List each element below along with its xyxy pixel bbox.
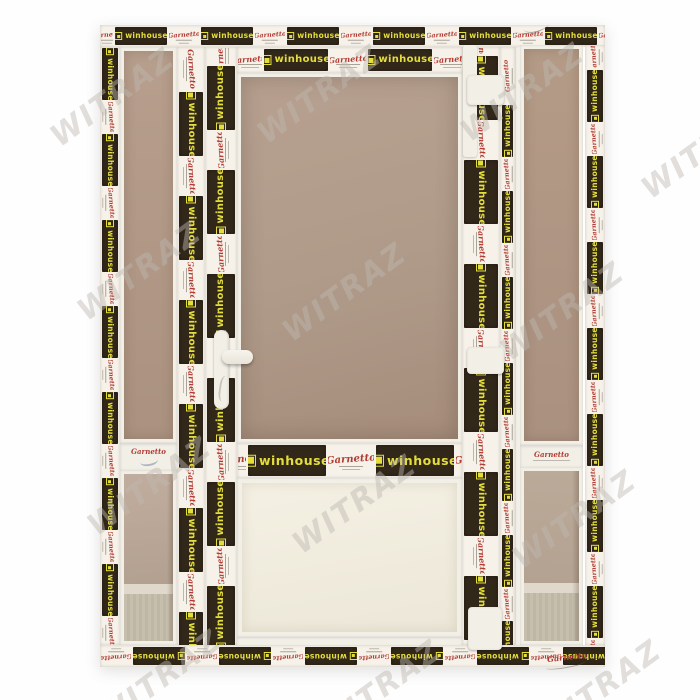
winhouse-wordmark: winhouse [469, 32, 511, 40]
garnetto-wordmark: Garnetto [238, 54, 262, 65]
film-print-line [186, 580, 187, 604]
garnetto-wordmark: Garnetto [590, 46, 599, 68]
winhouse-logo-icon [504, 580, 512, 587]
winhouse-wordmark: winhouse [106, 58, 114, 100]
marker-scribble [139, 454, 158, 467]
film-segment-winhouse: winhouse [502, 535, 513, 587]
film-segment-garnetto: Garnetto [102, 618, 118, 645]
winhouse-logo-icon [264, 55, 271, 65]
film-segment-garnetto: Garnetto [464, 538, 498, 574]
film-segment-winhouse: winhouse [219, 647, 271, 665]
film-segment-winhouse: winhouse [133, 647, 185, 665]
garnetto-wordmark: Garnetto [502, 503, 511, 533]
tinted-glass [124, 51, 173, 439]
film-segment-garnetto: Garnetto [207, 132, 235, 168]
film-print-line [598, 303, 599, 319]
garnetto-wordmark: Garnetto [187, 653, 217, 662]
film-print-line [106, 367, 107, 383]
winhouse-wordmark: winhouse [186, 206, 196, 260]
winhouse-wordmark: winhouse [106, 488, 114, 530]
film-segment-winhouse: winhouse [587, 414, 603, 466]
room-carpet [124, 594, 173, 641]
winhouse-logo-icon [476, 576, 486, 583]
film-segment-garnetto: Garnetto [359, 647, 389, 665]
winhouse-wordmark: winhouse [504, 191, 512, 233]
winhouse-logo-icon [591, 115, 599, 122]
winhouse-logo-icon [216, 539, 226, 546]
film-print-line [106, 195, 107, 211]
infill-panel [242, 483, 457, 632]
film-segment-garnetto: Garnetto [102, 102, 118, 132]
film-segment-winhouse: winhouse [587, 500, 603, 552]
winhouse-wordmark: winhouse [476, 274, 486, 328]
film-segment-winhouse: winhouse [587, 156, 603, 208]
winhouse-wordmark: winhouse [591, 328, 599, 370]
winhouse-logo-icon [106, 220, 114, 227]
winhouse-logo-icon [106, 48, 114, 55]
garnetto-wordmark: Garnetto [590, 210, 599, 240]
garnetto-wordmark: Garnetto [101, 31, 113, 40]
film-segment-winhouse: winhouse [207, 170, 235, 234]
garnetto-wordmark: Garnetto [590, 296, 599, 326]
film-print-line [598, 561, 599, 577]
film-print-line [476, 232, 477, 256]
winhouse-logo-icon [504, 322, 512, 329]
film-segment-garnetto: Garnetto [599, 27, 605, 45]
winhouse-logo-icon [504, 150, 512, 157]
film-segment-garnetto: Garnetto [587, 554, 603, 584]
film-print-line [511, 596, 512, 612]
winhouse-logo-icon [591, 545, 599, 552]
film-print-line [225, 554, 226, 578]
film-print-line [106, 281, 107, 297]
winhouse-logo-icon [476, 160, 486, 167]
film-print-line [225, 242, 226, 266]
winhouse-wordmark: winhouse [305, 652, 347, 660]
film-print-line [336, 64, 360, 65]
handwritten-note: Garnetto [547, 651, 587, 663]
winhouse-wordmark: winhouse [504, 363, 512, 405]
film-segment-garnetto: Garnetto [207, 548, 235, 584]
winhouse-wordmark: winhouse [186, 518, 196, 572]
garnetto-wordmark: Garnetto [238, 453, 246, 466]
film-print-line [511, 510, 512, 526]
winhouse-wordmark: winhouse [504, 277, 512, 319]
winhouse-logo-icon [186, 196, 196, 203]
winhouse-wordmark: winhouse [591, 156, 599, 198]
film-segment-winhouse: winhouse [464, 368, 498, 432]
garnetto-wordmark: Garnetto [502, 589, 511, 619]
garnetto-wordmark: Garnetto [215, 48, 226, 64]
garnetto-wordmark: Garnetto [590, 468, 599, 498]
winhouse-logo-icon [504, 408, 512, 415]
winhouse-logo-icon [216, 435, 226, 442]
film-segment-winhouse: winhouse [502, 621, 513, 645]
winhouse-wordmark: winhouse [106, 574, 114, 616]
film-segment-winhouse: winhouse [102, 564, 118, 616]
winhouse-logo-icon [106, 478, 114, 485]
winhouse-logo-icon [591, 287, 599, 294]
film-segment-garnetto: Garnetto [587, 210, 603, 240]
winhouse-wordmark: winhouse [297, 32, 339, 40]
door-hinge-middle [467, 347, 504, 374]
protective-film-right-frame: GarnettowinhouseGarnettowinhouseGarnetto… [585, 45, 605, 645]
winhouse-wordmark: winhouse [106, 230, 114, 272]
sidelight-right-lower-glass [520, 467, 583, 645]
film-segment-garnetto: Garnetto [102, 274, 118, 304]
film-segment-winhouse: winhouse [459, 27, 511, 45]
door-hinge-bottom [468, 607, 502, 650]
winhouse-wordmark: winhouse [216, 170, 226, 224]
film-print-line [452, 652, 468, 653]
film-segment-garnetto: Garnetto [238, 445, 246, 476]
film-print-line [339, 466, 363, 467]
film-print-line [194, 652, 210, 653]
winhouse-logo-icon [106, 306, 114, 313]
garnetto-wordmark: Garnetto [215, 132, 226, 168]
film-segment-winhouse: winhouse [207, 586, 235, 645]
protective-film-left-mullion: GarnettowinhouseGarnettowinhouseGarnetto… [177, 47, 205, 645]
film-segment-winhouse: winhouse [248, 445, 326, 476]
winhouse-logo-icon [216, 643, 226, 645]
winhouse-wordmark: winhouse [133, 652, 175, 660]
film-segment-winhouse: winhouse [102, 220, 118, 272]
film-segment-garnetto: Garnetto [101, 27, 113, 45]
garnetto-wordmark: Garnetto [187, 49, 198, 89]
film-print-line [238, 466, 246, 467]
garnetto-wordmark: Garnetto [328, 453, 374, 466]
winhouse-logo-icon [201, 32, 208, 40]
film-segment-winhouse: winhouse [373, 27, 425, 45]
film-segment-winhouse: winhouse [464, 264, 498, 328]
garnetto-wordmark: Garnetto [477, 122, 488, 158]
film-segment-winhouse: winhouse [264, 49, 328, 71]
film-segment-garnetto: Garnetto [427, 27, 457, 45]
winhouse-logo-icon [545, 32, 552, 40]
garnetto-wordmark: Garnetto [215, 444, 226, 480]
room-baseboard [524, 583, 579, 593]
film-print-line [186, 476, 187, 500]
film-print-line [598, 49, 599, 65]
winhouse-logo-icon [186, 508, 196, 515]
door-handle-lever [222, 350, 253, 364]
winhouse-logo-icon [216, 227, 226, 234]
garnetto-wordmark: Garnetto [273, 653, 303, 662]
winhouse-wordmark: winhouse [591, 414, 599, 456]
winhouse-logo-icon [476, 264, 486, 271]
winhouse-wordmark: winhouse [216, 482, 226, 536]
film-segment-garnetto: Garnetto [587, 468, 603, 498]
film-segment-garnetto: Garnetto [179, 574, 203, 610]
film-print-line [598, 475, 599, 491]
film-print-line [598, 217, 599, 233]
winhouse-logo-icon [591, 201, 599, 208]
film-segment-garnetto: Garnetto [502, 159, 513, 189]
film-print-line [434, 39, 450, 40]
garnetto-wordmark: Garnetto [477, 434, 488, 470]
film-segment-garnetto: Garnetto [179, 366, 203, 402]
winhouse-wordmark: winhouse [504, 621, 512, 645]
protective-film-door-mid-rail: GarnettowinhouseGarnettowinhouseGarnetto… [237, 443, 462, 478]
winhouse-wordmark: winhouse [259, 454, 326, 467]
film-print-line [238, 64, 262, 65]
film-segment-winhouse: winhouse [179, 300, 203, 364]
garnetto-wordmark: Garnetto [187, 470, 198, 506]
winhouse-wordmark: winhouse [106, 402, 114, 444]
winhouse-wordmark: winhouse [186, 414, 196, 468]
film-print-line [511, 338, 512, 354]
film-segment-garnetto: Garnetto [207, 48, 235, 64]
film-segment-winhouse: winhouse [102, 134, 118, 186]
winhouse-logo-icon [186, 404, 196, 411]
film-print-line [106, 625, 107, 641]
film-segment-winhouse: winhouse [305, 647, 357, 665]
film-print-line [280, 652, 296, 653]
garnetto-wordmark: Garnetto [590, 554, 599, 584]
film-print-line [598, 389, 599, 405]
film-segment-garnetto: Garnetto [102, 188, 118, 218]
film-print-line [106, 109, 107, 125]
winhouse-wordmark: winhouse [477, 652, 519, 660]
garnetto-wordmark: Garnetto [215, 548, 226, 584]
winhouse-logo-icon [591, 373, 599, 380]
film-print-line [186, 57, 187, 81]
winhouse-logo-icon [373, 32, 380, 40]
film-segment-garnetto: Garnetto [207, 236, 235, 272]
garnetto-wordmark: Garnetto [107, 446, 116, 476]
film-segment-winhouse: winhouse [179, 508, 203, 572]
winhouse-logo-icon [106, 134, 114, 141]
film-print-line [511, 252, 512, 268]
winhouse-logo-icon [186, 300, 196, 307]
winhouse-wordmark: winhouse [591, 500, 599, 542]
garnetto-wordmark: Garnetto [341, 31, 371, 40]
winhouse-wordmark: winhouse [476, 482, 486, 536]
garnetto-wordmark: Garnetto [590, 382, 599, 412]
film-print-line [348, 39, 364, 40]
film-print-line [108, 652, 124, 653]
film-segment-winhouse: winhouse [587, 242, 603, 294]
garnetto-wordmark: Garnetto [534, 451, 569, 458]
winhouse-logo-icon [436, 652, 443, 660]
sidelight-left-transom: Garnetto [120, 443, 177, 470]
room-wall [524, 471, 579, 583]
winhouse-wordmark: winhouse [211, 32, 253, 40]
film-segment-winhouse: winhouse [464, 160, 498, 224]
garnetto-wordmark: Garnetto [477, 48, 488, 54]
sidelight-left-upper-glass [120, 47, 177, 443]
winhouse-wordmark: winhouse [387, 454, 454, 467]
garnetto-wordmark: Garnetto [169, 31, 199, 40]
tinted-glass [524, 49, 579, 441]
winhouse-logo-icon [504, 236, 512, 243]
film-print-line [101, 39, 113, 40]
film-segment-garnetto: Garnetto [502, 417, 513, 447]
winhouse-wordmark: winhouse [476, 170, 486, 224]
winhouse-wordmark: winhouse [591, 586, 599, 628]
winhouse-wordmark: winhouse [504, 535, 512, 577]
winhouse-logo-icon [115, 32, 122, 40]
garnetto-wordmark: Garnetto [599, 31, 605, 40]
product-photo: GarnettowinhouseGarnettowinhouseGarnetto… [0, 0, 700, 700]
winhouse-logo-icon [216, 123, 226, 130]
film-segment-winhouse: winhouse [115, 27, 167, 45]
film-segment-garnetto: Garnetto [587, 640, 603, 645]
film-print-line [511, 166, 512, 182]
garnetto-wordmark: Garnetto [107, 360, 116, 390]
film-print-line [598, 131, 599, 147]
film-segment-garnetto: Garnetto [464, 434, 498, 470]
film-segment-garnetto: Garnetto [102, 360, 118, 390]
garnetto-wordmark: Garnetto [107, 274, 116, 304]
winhouse-wordmark: winhouse [106, 316, 114, 358]
film-segment-winhouse: winhouse [102, 478, 118, 530]
winhouse-wordmark: winhouse [106, 144, 114, 186]
film-print-line [106, 539, 107, 555]
wall-corner-shadow [167, 474, 173, 641]
film-print-line [186, 372, 187, 396]
garnetto-wordmark: Garnetto [477, 226, 488, 262]
protective-film-left-frame: winhouseGarnettowinhouseGarnettowinhouse… [100, 47, 120, 645]
film-segment-garnetto: Garnetto [587, 46, 603, 68]
garnetto-wordmark: Garnetto [187, 158, 198, 194]
film-segment-garnetto: Garnetto [587, 296, 603, 326]
film-segment-garnetto: Garnetto [238, 49, 262, 71]
winhouse-logo-icon [106, 564, 114, 571]
film-segment-garnetto: Garnetto [502, 589, 513, 619]
winhouse-wordmark: winhouse [219, 652, 261, 660]
winhouse-logo-icon [476, 472, 486, 479]
film-segment-garnetto: Garnetto [179, 48, 203, 90]
garnetto-wordmark: Garnetto [590, 124, 599, 154]
film-segment-winhouse: winhouse [207, 274, 235, 338]
film-print-line [106, 453, 107, 469]
film-segment-winhouse: winhouse [502, 105, 513, 157]
film-print-line [533, 460, 571, 461]
film-print-line [225, 48, 226, 64]
film-print-line [511, 424, 512, 440]
film-segment-garnetto: Garnetto [330, 49, 366, 71]
film-segment-winhouse: winhouse [391, 647, 443, 665]
film-segment-garnetto: Garnetto [502, 245, 513, 275]
film-print-line [186, 164, 187, 188]
winhouse-wordmark: winhouse [216, 66, 226, 120]
winhouse-logo-icon [504, 494, 512, 501]
film-segment-winhouse: winhouse [587, 328, 603, 380]
garnetto-wordmark: Garnetto [590, 640, 599, 645]
film-segment-winhouse: winhouse [102, 48, 118, 100]
winhouse-logo-icon [287, 32, 294, 40]
film-segment-garnetto: Garnetto [102, 446, 118, 476]
winhouse-wordmark: winhouse [186, 310, 196, 364]
winhouse-logo-icon [264, 652, 271, 660]
film-segment-winhouse: winhouse [502, 191, 513, 243]
film-print-line [225, 138, 226, 162]
winhouse-wordmark: winhouse [378, 55, 432, 65]
film-segment-garnetto: Garnetto [179, 470, 203, 506]
film-print-line [225, 450, 226, 474]
garnetto-wordmark: Garnetto [477, 538, 488, 574]
sidelight-right-transom: Garnetto [520, 445, 583, 467]
winhouse-wordmark: winhouse [383, 32, 425, 40]
garnetto-wordmark: Garnetto [445, 653, 475, 662]
winhouse-wordmark: winhouse [274, 55, 328, 65]
room-baseboard [124, 584, 173, 594]
film-segment-winhouse: winhouse [376, 445, 454, 476]
film-segment-garnetto: Garnetto [434, 49, 462, 71]
film-segment-winhouse: winhouse [545, 27, 597, 45]
winhouse-logo-icon [106, 392, 114, 399]
winhouse-logo-icon [522, 652, 529, 660]
film-segment-winhouse: winhouse [464, 472, 498, 536]
film-segment-winhouse: winhouse [207, 482, 235, 546]
garnetto-wordmark: Garnetto [107, 102, 116, 132]
film-segment-garnetto: Garnetto [255, 27, 285, 45]
winhouse-logo-icon [368, 55, 375, 65]
film-print-line [366, 652, 382, 653]
garnetto-wordmark: Garnetto [255, 31, 285, 40]
film-segment-winhouse: winhouse [102, 306, 118, 358]
winhouse-logo-icon [591, 631, 599, 638]
clear-glass-room-view [124, 474, 173, 641]
winhouse-logo-icon [186, 92, 196, 99]
winhouse-wordmark: winhouse [216, 586, 226, 640]
winhouse-wordmark: winhouse [391, 652, 433, 660]
garnetto-wordmark: Garnetto [187, 366, 198, 402]
winhouse-wordmark: winhouse [186, 102, 196, 156]
room-wall [124, 474, 173, 584]
film-segment-garnetto: Garnetto [502, 503, 513, 533]
garnetto-wordmark: Garnetto [502, 159, 511, 189]
film-segment-garnetto: Garnetto [179, 262, 203, 298]
winhouse-logo-icon [178, 652, 185, 660]
tinted-glass [241, 77, 458, 439]
winhouse-wordmark: winhouse [216, 274, 226, 328]
film-print-line [511, 68, 512, 84]
garnetto-wordmark: Garnetto [502, 417, 511, 447]
film-segment-winhouse: winhouse [201, 27, 253, 45]
room-carpet [524, 593, 579, 641]
winhouse-logo-icon [186, 612, 196, 619]
film-segment-winhouse: winhouse [207, 66, 235, 130]
door-panel [237, 478, 462, 637]
film-segment-winhouse: winhouse [502, 449, 513, 501]
winhouse-wordmark: winhouse [555, 32, 597, 40]
sidelight-right-upper-glass [520, 45, 583, 445]
wall-corner-shadow [572, 471, 579, 641]
film-segment-garnetto: Garnetto [587, 382, 603, 412]
winhouse-logo-icon [350, 652, 357, 660]
watermark-text: WITRAZ [637, 95, 700, 204]
sidelight-left-lower-glass [120, 470, 177, 645]
winhouse-logo-icon [476, 56, 486, 63]
winhouse-wordmark: winhouse [186, 622, 196, 645]
film-print-line [262, 39, 278, 40]
winhouse-wordmark: winhouse [125, 32, 167, 40]
film-segment-winhouse: winhouse [179, 196, 203, 260]
film-segment-garnetto: Garnetto [187, 647, 217, 665]
film-segment-garnetto: Garnetto [341, 27, 371, 45]
film-segment-winhouse: winhouse [102, 392, 118, 444]
film-print-line [176, 39, 192, 40]
film-segment-garnetto: Garnetto [464, 226, 498, 262]
clear-glass-room-view [524, 471, 579, 641]
winhouse-wordmark: winhouse [504, 449, 512, 491]
garnetto-wordmark: Garnetto [107, 188, 116, 218]
winhouse-wordmark: winhouse [591, 242, 599, 284]
film-segment-winhouse: winhouse [179, 612, 203, 645]
winhouse-wordmark: winhouse [504, 105, 512, 147]
